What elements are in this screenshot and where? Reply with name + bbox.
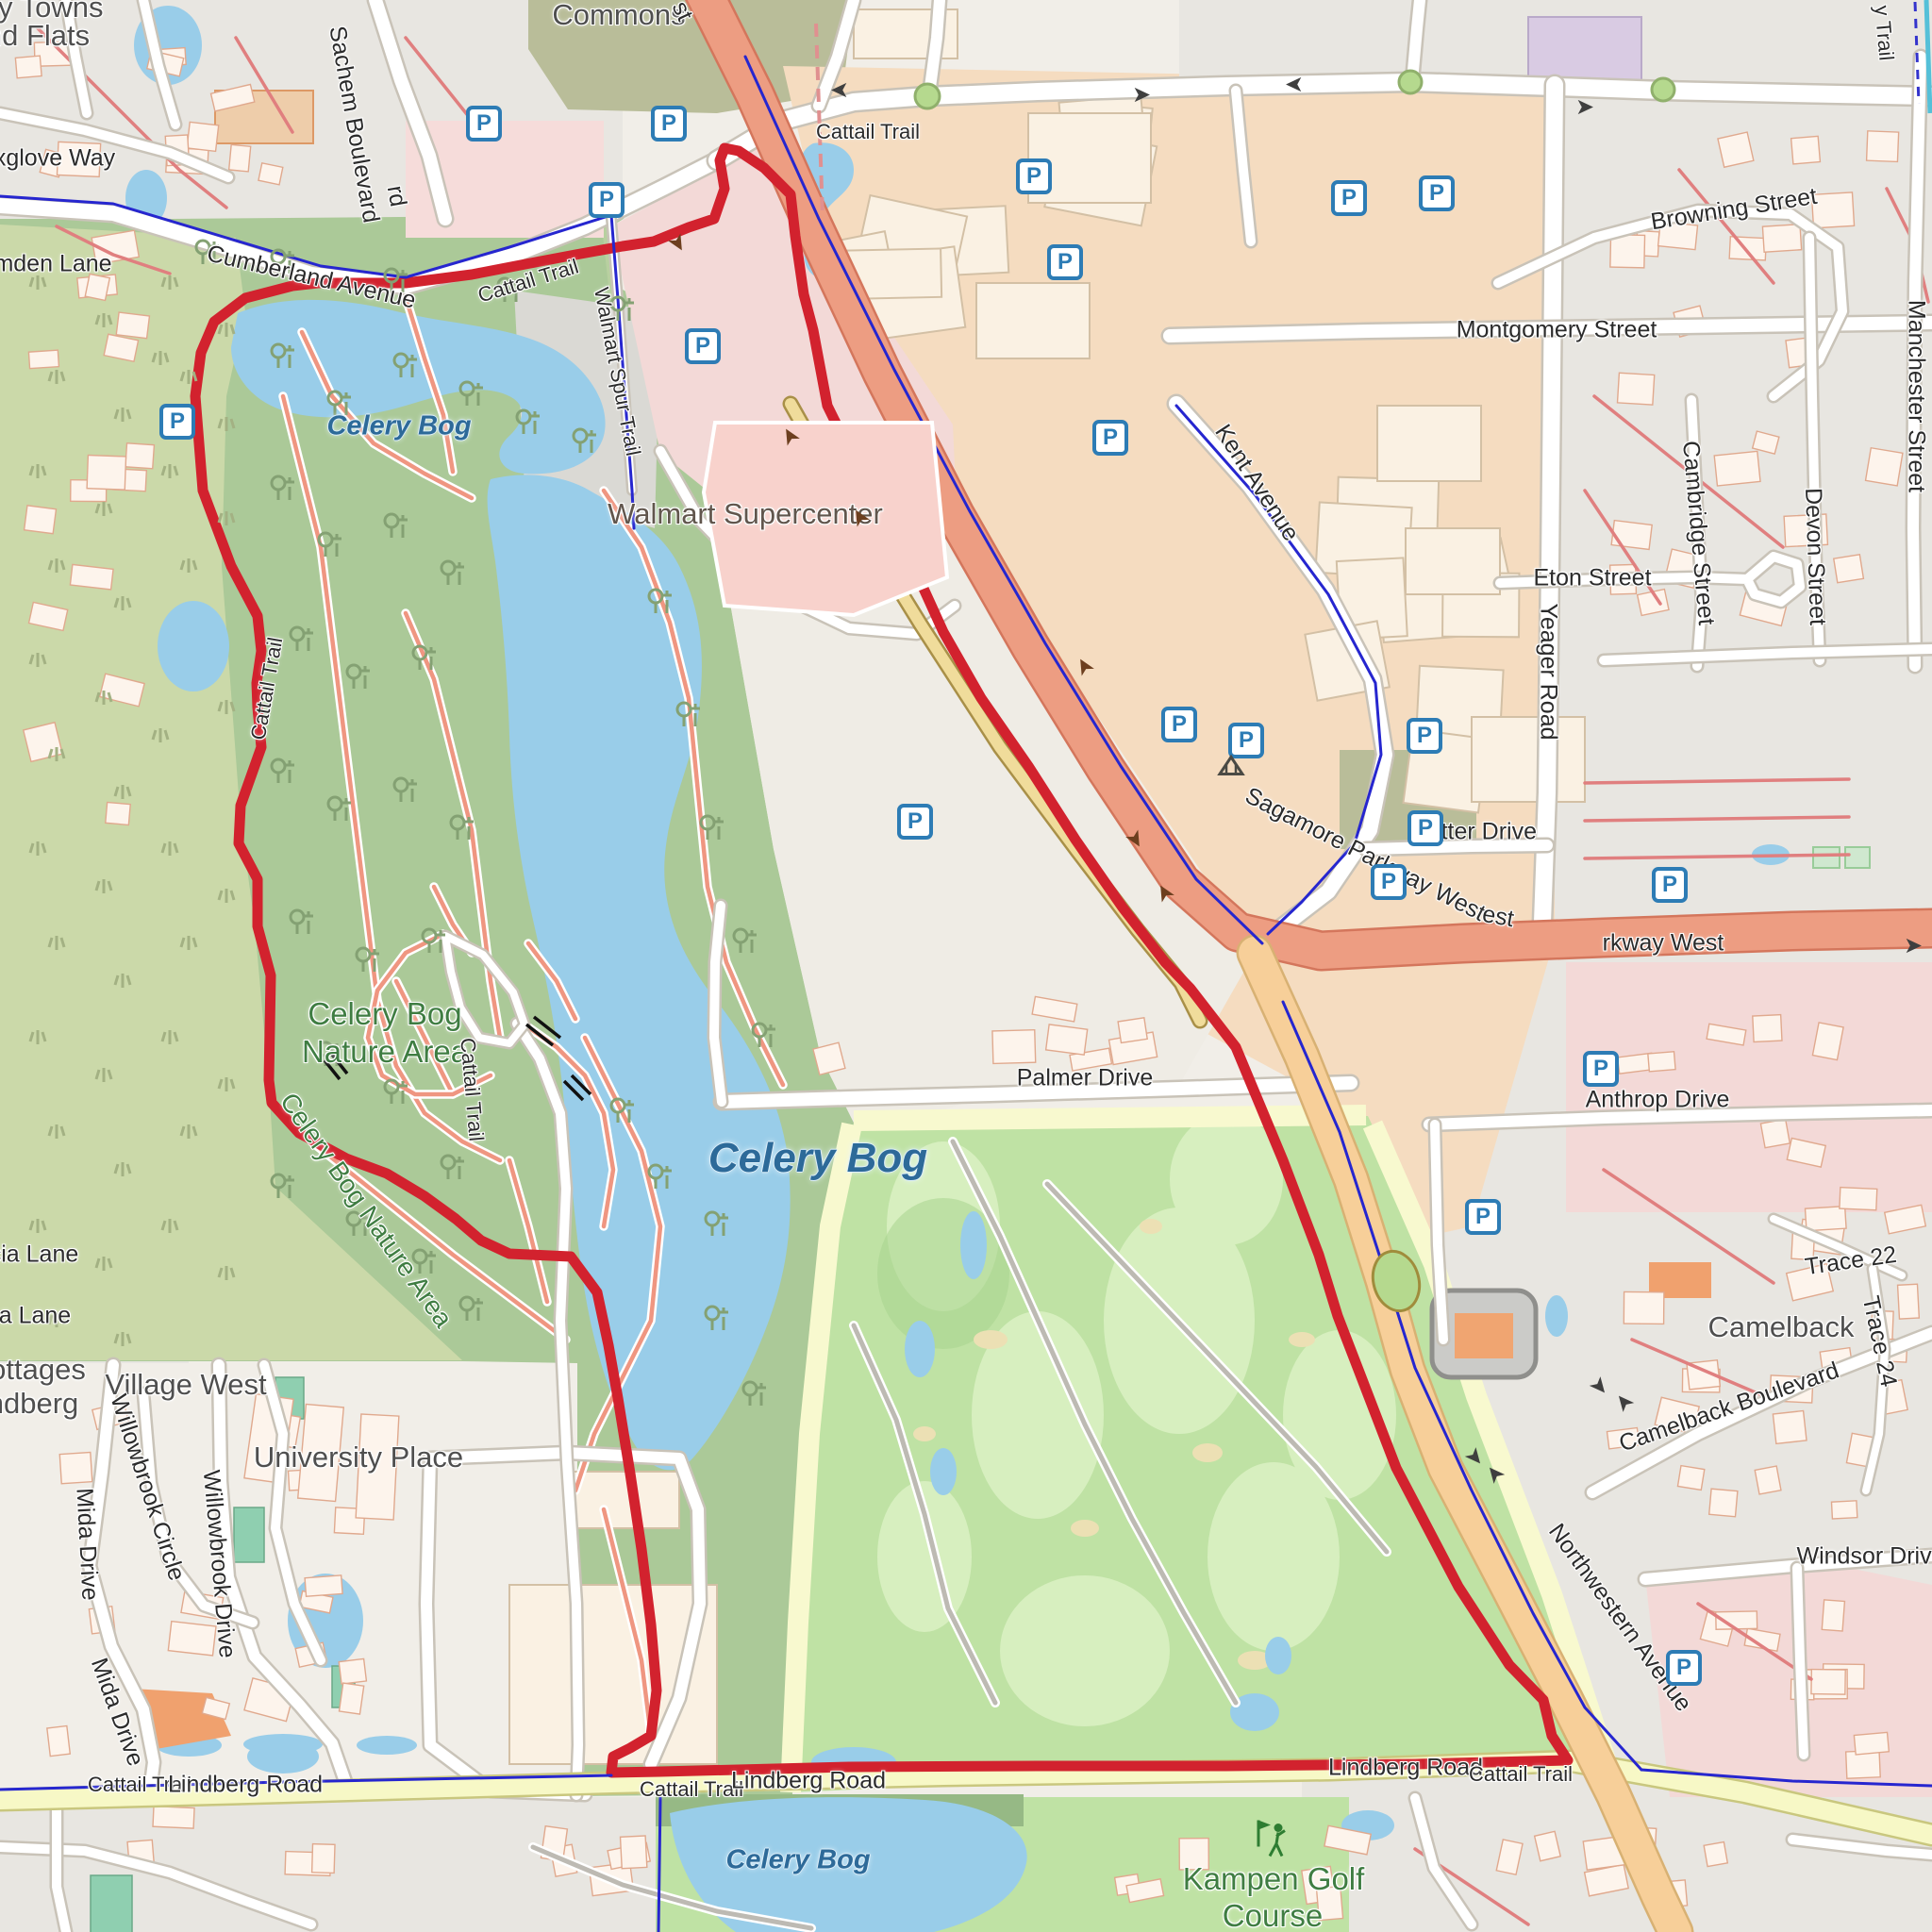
- retail-pink-right: [1566, 962, 1932, 1212]
- walmart-building: [704, 423, 947, 615]
- map-canvas[interactable]: vy Townsnd FlatsCommonsstrdSachem Boulev…: [0, 0, 1932, 1932]
- map-base-layer: [0, 0, 1932, 1932]
- west-pond: [158, 601, 229, 691]
- residential-topright: [1555, 57, 1932, 948]
